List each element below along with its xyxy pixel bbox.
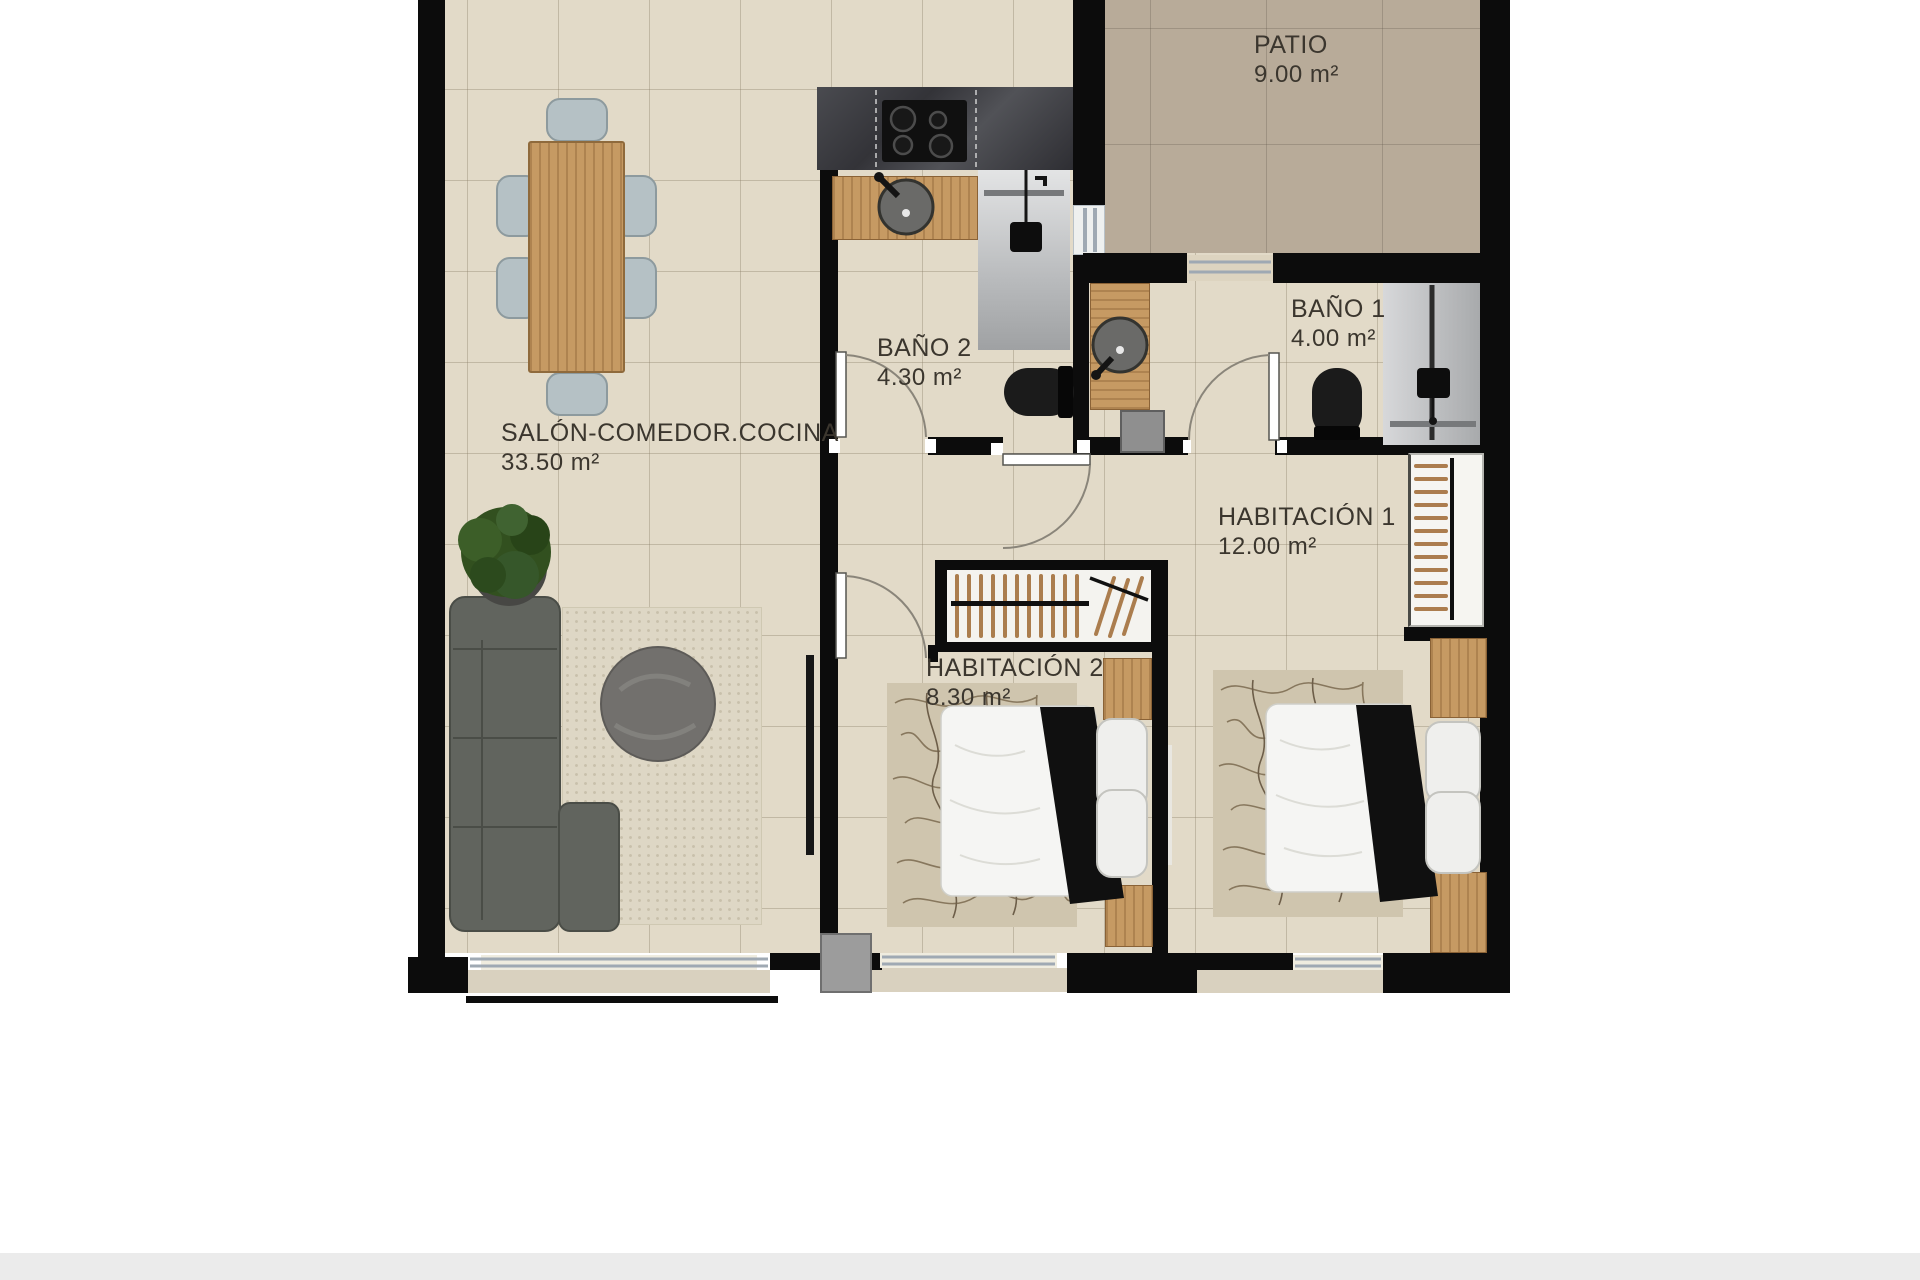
hab1-nightstand-top [1430, 638, 1487, 718]
utility-box [820, 933, 872, 993]
wall-corner-bottom-right [1383, 953, 1510, 993]
room-area: 4.00 m² [1291, 324, 1386, 354]
hab1-carpet [1213, 670, 1403, 917]
footer-bar [0, 1253, 1920, 1280]
room-label-patio: PATIO 9.00 m² [1254, 30, 1339, 90]
wall-bottom-c [1197, 953, 1293, 970]
room-area: 4.30 m² [877, 363, 972, 393]
patio-glass-door [1073, 205, 1105, 255]
window-bedroom1 [1293, 955, 1383, 970]
sofa-chaise [558, 802, 620, 932]
hab2-carpet [887, 683, 1077, 927]
room-area: 12.00 m² [1218, 532, 1396, 562]
sofa-seam [453, 648, 557, 650]
bano2-shower [978, 170, 1070, 350]
sofa-body [449, 596, 561, 932]
wall-patio-bottom-b [1273, 253, 1480, 283]
hab1-door-handle-mark [1168, 745, 1172, 865]
bano2-vanity [832, 176, 978, 240]
room-name: BAÑO 1 [1291, 294, 1386, 324]
patio-glass-door-pane [1083, 208, 1087, 252]
door-jamb [1277, 440, 1287, 453]
dining-chair-top [546, 98, 608, 142]
terrace-bedroom1 [1197, 970, 1383, 993]
sofa-back-edge [481, 640, 483, 920]
room-label-bano2: BAÑO 2 4.30 m² [877, 333, 972, 393]
window-salon [468, 955, 770, 970]
sofa-seam [453, 826, 557, 828]
hab2-nightstand-bottom [1105, 885, 1153, 947]
window-patio-bano1 [1187, 255, 1273, 281]
door-jamb [1183, 440, 1191, 453]
room-name: SALÓN-COMEDOR.COCINA [501, 418, 839, 448]
room-name: PATIO [1254, 30, 1339, 60]
sofa-seam [453, 737, 557, 739]
room-area: 8.30 m² [926, 683, 1104, 713]
room-label-salon: SALÓN-COMEDOR.COCINA 33.50 m² [501, 418, 839, 478]
hab1-wardrobe [1408, 453, 1484, 627]
balcony-edge-line [466, 996, 778, 1003]
wall-left-outer [418, 0, 445, 958]
wall-kitchen-patio [1073, 0, 1105, 205]
room-name: HABITACIÓN 2 [926, 653, 1104, 683]
bano1-vanity [1090, 283, 1150, 410]
bano1-shower [1383, 283, 1480, 445]
wall-bottom-a [770, 953, 825, 970]
room-area: 9.00 m² [1254, 60, 1339, 90]
room-name: BAÑO 2 [877, 333, 972, 363]
wall-right-outer [1480, 0, 1510, 957]
window-jamb [757, 955, 770, 970]
window-jamb [468, 955, 481, 970]
hall-closet-interior [947, 570, 1151, 642]
wall-corner-bottom-left [408, 957, 468, 993]
tv-panel [806, 655, 814, 855]
dining-table [528, 141, 625, 373]
window-bedroom2 [880, 953, 1057, 968]
room-name: HABITACIÓN 1 [1218, 502, 1396, 532]
hab1-nightstand-bottom [1430, 872, 1487, 953]
terrace-bedroom2 [872, 968, 1067, 992]
hab2-nightstand-top [1103, 658, 1152, 720]
room-label-bano1: BAÑO 1 4.00 m² [1291, 294, 1386, 354]
bano1-washer [1120, 410, 1165, 453]
dining-chair-bottom [546, 372, 608, 416]
floor-plan-canvas: SALÓN-COMEDOR.COCINA 33.50 m² PATIO 9.00… [0, 0, 1920, 1280]
wall-patio-bottom-a [1083, 253, 1187, 283]
door-jamb [925, 439, 936, 453]
wall-bano1-left [1073, 255, 1089, 455]
room-label-hab1: HABITACIÓN 1 12.00 m² [1218, 502, 1396, 562]
room-label-hab2: HABITACIÓN 2 8.30 m² [926, 653, 1104, 713]
wall-salon-divider [820, 170, 838, 957]
wall-bottom-block-mid [1067, 953, 1197, 993]
door-jamb [991, 443, 1003, 455]
door-jamb [1077, 440, 1090, 453]
patio-glass-door-pane2 [1093, 208, 1097, 252]
cooktop [882, 100, 967, 162]
room-area: 33.50 m² [501, 448, 839, 478]
terrace-salon [468, 970, 770, 993]
